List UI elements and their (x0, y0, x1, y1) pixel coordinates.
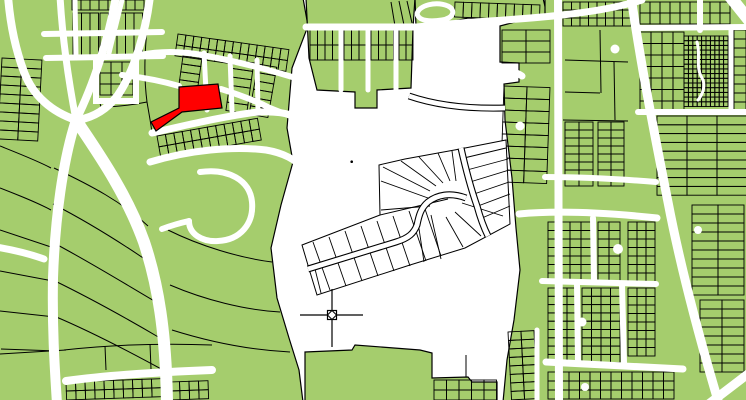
road-right-h3 (542, 281, 656, 284)
culdesac-bulb (516, 122, 525, 131)
road-right-v1 (558, 0, 559, 400)
street-grid-h2 (46, 56, 163, 58)
parcel-map-canvas[interactable] (0, 0, 746, 400)
point-feature-dot (350, 160, 353, 163)
road-rt-h1 (636, 27, 746, 28)
street-grid-h1 (44, 32, 162, 34)
crosshair-center-box (328, 311, 337, 320)
culdesac-bulb (694, 226, 702, 234)
street-right-v3 (622, 284, 624, 363)
street-grid-v1 (75, 0, 76, 57)
street-right-v2 (593, 218, 594, 281)
street-col-c (257, 60, 258, 112)
map-viewport[interactable] (0, 0, 746, 400)
culdesac-bulb (581, 383, 589, 391)
culdesac-bulb (611, 45, 620, 54)
culdesac-bulb (578, 318, 587, 327)
street-col-b (230, 56, 232, 111)
culdesac-bulb (613, 244, 623, 254)
